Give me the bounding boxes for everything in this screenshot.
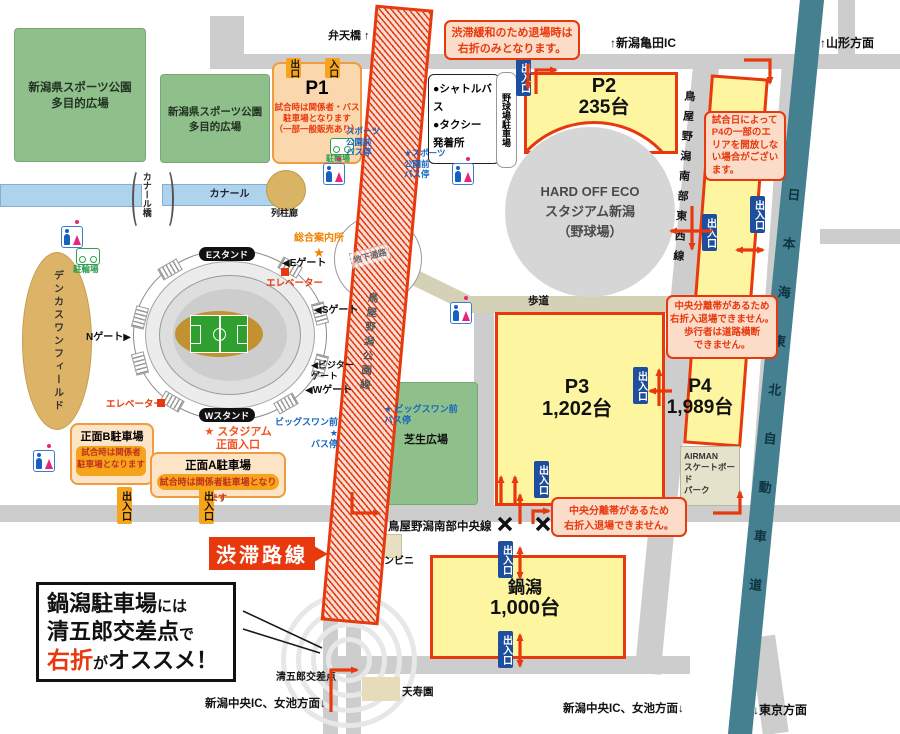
canal-west — [0, 184, 142, 207]
bicycle-parking-label: 駐輪場 — [73, 264, 99, 274]
woman-figure — [335, 172, 343, 182]
restroom-icon — [450, 302, 472, 324]
nabegata-name: 鍋潟 — [460, 578, 590, 597]
gate-visitor-label: ◀ビジター ゲート — [311, 360, 354, 382]
gate-badge-p3-east: 出入口 — [633, 367, 648, 404]
bubble-line3-red: 右折 — [47, 646, 93, 675]
gate-badge-front-b: 出入口 — [117, 487, 132, 524]
stadium: Eスタンド Wスタンド — [133, 249, 327, 421]
gate-n-label: Nゲート▶ — [86, 332, 131, 344]
chuo-ic-west-label: 新潟中央IC、女池方面↓ — [205, 698, 326, 712]
gate-badge-nabegata-north: 出入口 — [498, 541, 513, 578]
chuo-ic-east-label: 新潟中央IC、女池方面↓ — [563, 703, 684, 717]
p2-label: P2 235台 — [558, 75, 650, 119]
front-b-note: 試合時は関係者 駐車場となります — [76, 446, 146, 476]
star-icon: ★ — [313, 245, 325, 260]
restroom-icon — [33, 450, 55, 472]
airman-skatepark: AIRMAN スケートボード パーク — [680, 446, 740, 506]
p3-name: P3 — [505, 376, 649, 398]
bubble-line2-small: で — [179, 625, 194, 644]
man-figure — [326, 171, 332, 182]
gate-badge-p3-south: 出入口 — [534, 461, 549, 498]
baseball-parking-label: 野球場駐車場 — [500, 93, 513, 147]
bus-stop-sports-park-left: スポーツ 公園前 バス停 — [346, 126, 380, 158]
gate-badge-p2: 出入口 — [516, 59, 531, 96]
woman-figure — [462, 311, 470, 321]
p2-name: P2 — [558, 75, 650, 97]
note-right-turn-only: 渋滞緩和のため退場時は 右折のみとなります。 — [444, 20, 580, 60]
note-p4-partial: 試合日によって P4の一部のエ リアを開放しな い場合がござい ます。 — [704, 111, 786, 181]
colonnade-circle — [266, 170, 306, 210]
tokyo-label: ↓東京方面 — [753, 703, 807, 717]
yamagata-label: ↑山形方面 — [820, 36, 874, 50]
elevator-icon — [281, 268, 289, 276]
p1-exit-badge: 出口 — [286, 58, 301, 78]
woman-figure — [45, 459, 53, 469]
kameda-ic-label: ↑新潟亀田IC — [610, 36, 676, 50]
bus-stop-big-swan-left: ビッグスワン前 ★ バス停 — [268, 417, 338, 449]
front-a-name: 正面A駐車場 — [152, 457, 284, 473]
soccer-pitch — [190, 315, 248, 353]
gate-badge-front-a: 出入口 — [199, 487, 214, 524]
pitch-goalbox-right — [237, 325, 247, 344]
front-a-parking: 正面A駐車場 試合時は関係者駐車場となります — [150, 452, 286, 498]
gate-badge-p4-left: 出入口 — [702, 214, 717, 251]
road-central-label: 鳥屋野潟南部中央線 — [388, 521, 492, 535]
gate-s-label: ◀Sゲート — [314, 305, 358, 317]
pitch-center-circle — [213, 328, 226, 341]
gate-badge-nabegata-south: 出入口 — [498, 631, 513, 668]
restroom-icon — [61, 226, 83, 248]
p4-capacity: 1,989台 — [648, 397, 752, 418]
man-figure — [453, 310, 459, 321]
sports-park-plaza-b: 新潟県スポーツ公園 多目的広場 — [160, 74, 270, 163]
p3-capacity: 1,202台 — [505, 398, 649, 420]
canal-label: カナール — [210, 189, 250, 201]
road-right-mid — [820, 229, 900, 244]
congestion-route-callout: 渋滞路線 — [209, 537, 315, 570]
front-b-parking: 正面B駐車場 試合時は関係者 駐車場となります — [70, 423, 154, 485]
tenjuen-box — [362, 677, 400, 701]
p4-label: P4 1,989台 — [648, 376, 752, 419]
man-figure — [36, 458, 42, 469]
front-b-name: 正面B駐車場 — [72, 428, 152, 444]
note-median-pedestrian: 中央分離帯があるため 右折入退場できません。 歩行者は道路横断 できません。 — [666, 295, 778, 359]
gate-w-label: ◀Wゲート — [305, 385, 352, 397]
bubble-line3-small: が — [93, 654, 108, 673]
bus-stop-sports-park-right: ★スポーツ 公園前 バス停 — [404, 148, 445, 180]
denka-swan-field-label: デンカスワンフィールド — [50, 270, 65, 413]
bubble-line2-big: 清五郎交差点 — [47, 618, 179, 646]
bubble-line1-big: 鍋潟駐車場 — [47, 590, 157, 618]
p1-name: P1 — [274, 78, 360, 100]
benten-bridge-label: 弁天橋 ↑ — [328, 30, 370, 43]
info-center-text: 総合案内所 — [294, 233, 344, 244]
restroom-icon — [452, 163, 474, 185]
airman-label: AIRMAN スケートボード パーク — [681, 447, 739, 501]
woman-figure — [73, 235, 81, 245]
colonnade-label: 列柱廊 — [271, 208, 298, 219]
baseball-parking-box: 野球場駐車場 — [496, 72, 517, 168]
recommendation-callout: 鍋潟駐車場 には 清五郎交差点 で 右折 が オススメ！ — [36, 582, 236, 682]
man-figure — [455, 171, 461, 182]
sidewalk-label: 歩道 — [528, 295, 549, 308]
w-stand-pill: Wスタンド — [199, 408, 255, 422]
p2-capacity: 235台 — [558, 97, 650, 118]
gate-badge-p4-right: 出入口 — [750, 196, 765, 233]
baseball-stadium: HARD OFF ECO スタジアム新潟 （野球場） — [505, 127, 675, 297]
tenjuen-label: 天寿園 — [402, 686, 434, 699]
denka-swan-field: デンカスワンフィールド — [22, 252, 92, 430]
note-median: 中央分離帯があるため 右折入退場できません。 — [551, 497, 687, 537]
seigoro-intersection-label: 清五郎交差点 — [276, 672, 336, 684]
map-canvas: 日本海東北自動車道 カナール カナール橋 列柱廊 新潟県スポーツ公園 多目的広場… — [0, 0, 900, 734]
p4-name: P4 — [648, 376, 752, 397]
canal-bridge-label: カナール橋 — [141, 172, 152, 217]
man-figure — [64, 234, 70, 245]
canal-bridge-bracket — [160, 168, 174, 230]
nabegata-capacity: 1,000台 — [460, 597, 590, 619]
lawn-plaza-label: 芝生広場 — [404, 434, 448, 447]
bubble-line3-big: オススメ！ — [108, 647, 218, 675]
p1-entrance-badge: 入口 — [325, 58, 340, 78]
elevator-icon — [157, 399, 165, 407]
pitch-goalbox-left — [191, 325, 201, 344]
bus-stop-big-swan-right: ★ ビッグスワン前 バス停 — [384, 404, 458, 426]
p3-label: P3 1,202台 — [505, 376, 649, 421]
elevator-bottom-label: エレベーター — [106, 399, 163, 410]
nabegata-label: 鍋潟 1,000台 — [460, 578, 590, 619]
woman-figure — [464, 172, 472, 182]
front-a-note: 試合時は関係者駐車場となります — [157, 474, 279, 490]
bicycle-icon — [76, 248, 100, 265]
elevator-top-label: エレベーター — [266, 278, 323, 289]
info-center-label: 総合案内所 ★ — [294, 233, 344, 261]
sidewalk-horizontal — [455, 296, 697, 313]
bubble-line1-small: には — [157, 597, 187, 616]
e-stand-pill: Eスタンド — [199, 247, 255, 261]
sports-park-plaza-a: 新潟県スポーツ公園 多目的広場 — [14, 28, 146, 162]
restroom-icon — [323, 163, 345, 185]
